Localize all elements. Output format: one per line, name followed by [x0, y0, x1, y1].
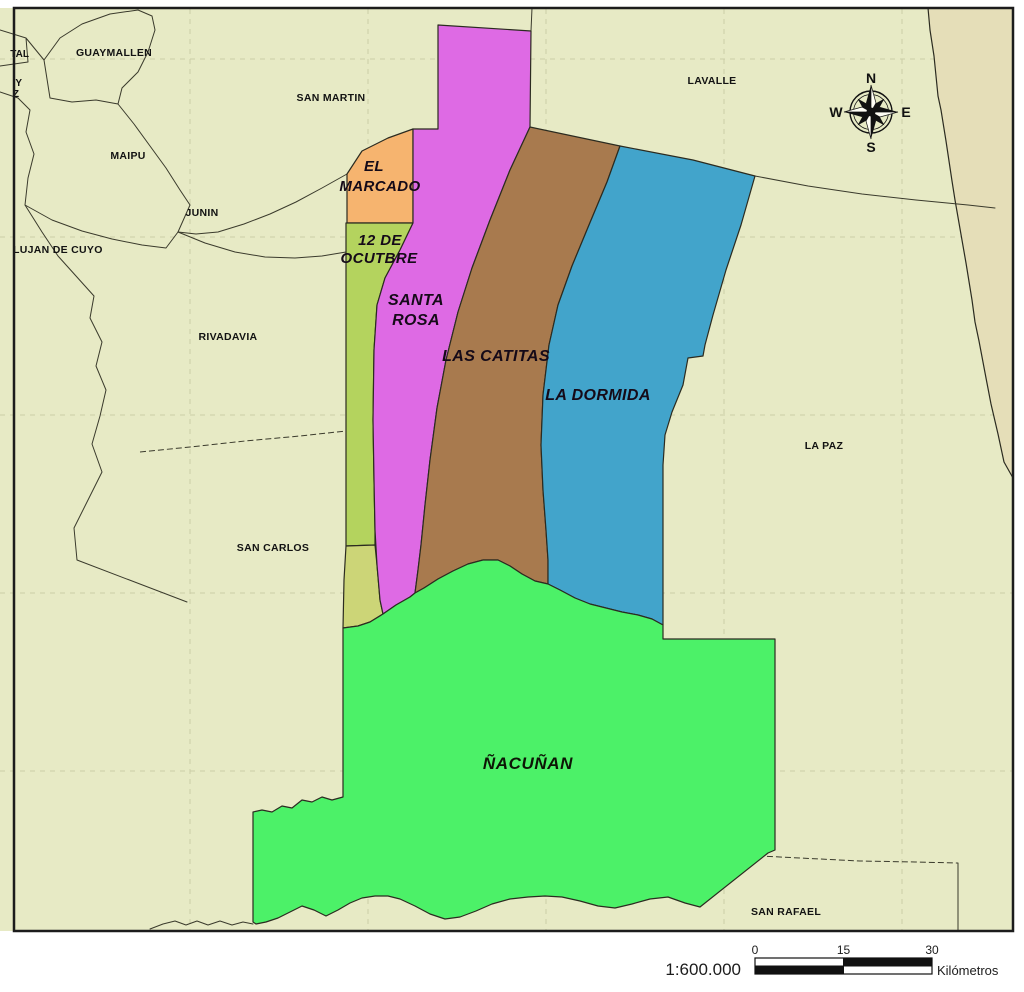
label-san-carlos: SAN CARLOS: [237, 542, 309, 554]
label-santa-rosa-line2: ROSA: [392, 312, 440, 329]
label-guaymallen: GUAYMALLEN: [76, 47, 152, 59]
scale-ratio: 1:600.000: [665, 960, 741, 979]
compass-label-south: S: [866, 139, 875, 155]
label-san-martin: SAN MARTIN: [297, 92, 366, 104]
scale-tick-0: 0: [752, 943, 759, 957]
compass-label-east: E: [901, 104, 910, 120]
map-canvas: TAL Y Z GUAYMALLEN SAN MARTIN LAVALLE MA…: [0, 0, 1024, 992]
label-lujan-de-cuyo: LUJAN DE CUYO: [13, 244, 103, 256]
label-junin: JUNIN: [185, 207, 218, 219]
label-san-rafael: SAN RAFAEL: [751, 906, 821, 918]
scale-bar-segments: [755, 958, 932, 974]
label-la-dormida: LA DORMIDA: [545, 387, 651, 404]
label-lavalle: LAVALLE: [688, 75, 737, 87]
label-nacunan: ÑACUÑAN: [483, 753, 573, 773]
scale-unit: Kilómetros: [937, 963, 999, 978]
map-page: TAL Y Z GUAYMALLEN SAN MARTIN LAVALLE MA…: [0, 0, 1024, 992]
compass-label-west: W: [829, 104, 843, 120]
label-12-de-ocutbre-line1: 12 DE: [358, 232, 402, 249]
label-el-marcado-line2: MARCADO: [339, 178, 420, 195]
scale-tick-30: 30: [925, 943, 939, 957]
label-maipu: MAIPU: [110, 150, 145, 162]
label-godoy-fragment-1: Y: [15, 78, 22, 89]
label-el-marcado-line1: EL: [364, 158, 384, 175]
label-las-catitas: LAS CATITAS: [442, 348, 550, 365]
compass-center-dot: [867, 108, 876, 117]
label-12-de-ocutbre-line2: OCUTBRE: [341, 250, 419, 267]
label-santa-rosa-line1: SANTA: [388, 292, 444, 309]
label-rivadavia: RIVADAVIA: [199, 331, 258, 343]
compass-label-north: N: [866, 70, 876, 86]
label-la-paz: LA PAZ: [805, 440, 844, 452]
scale-tick-15: 15: [837, 943, 851, 957]
scale-bar: 1:600.000 0 15 30 Kilómetros: [665, 943, 999, 979]
